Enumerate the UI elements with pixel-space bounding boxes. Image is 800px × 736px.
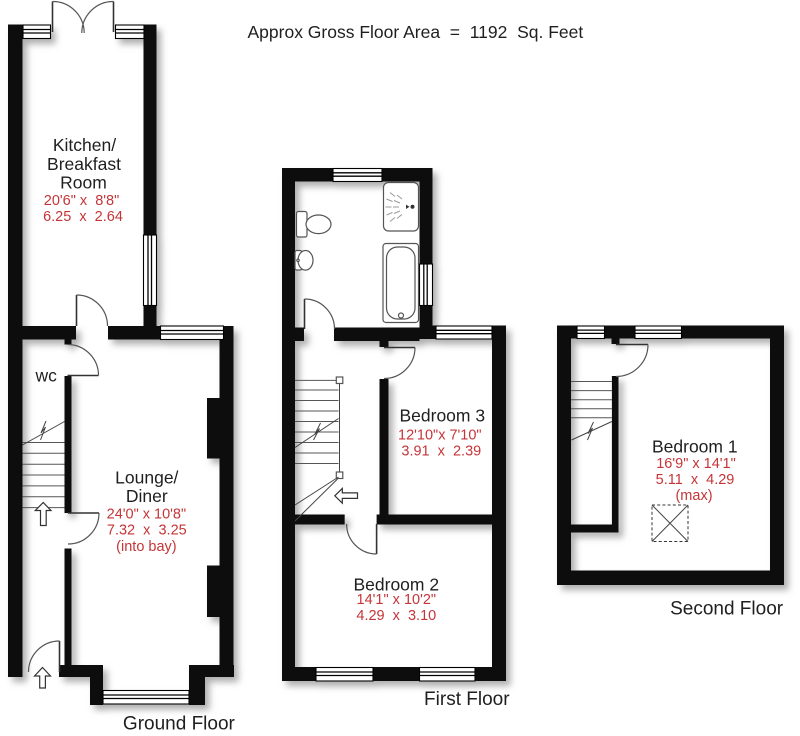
svg-text:Breakfast: Breakfast — [47, 154, 121, 174]
svg-text:20'6" x 8'8": 20'6" x 8'8" — [44, 193, 120, 209]
svg-text:(into bay): (into bay) — [116, 539, 176, 555]
svg-text:Second Floor: Second Floor — [670, 599, 784, 620]
svg-text:(max): (max) — [675, 488, 712, 504]
svg-text:6.25 x 2.64: 6.25 x 2.64 — [43, 209, 123, 225]
svg-text:Room: Room — [60, 173, 107, 193]
svg-text:Approx Gross Floor Area = 11: Approx Gross Floor Area = 1192 Sq. Feet — [248, 22, 584, 42]
svg-text:Bedroom 3: Bedroom 3 — [399, 405, 485, 425]
svg-text:14'1" x 10'2": 14'1" x 10'2" — [357, 592, 437, 608]
svg-text:24'0" x 10'8": 24'0" x 10'8" — [107, 507, 187, 523]
svg-text:Bedroom 1: Bedroom 1 — [652, 436, 738, 456]
svg-text:Lounge/: Lounge/ — [115, 467, 178, 487]
svg-text:wc: wc — [35, 365, 58, 385]
svg-text:7.32 x 3.25: 7.32 x 3.25 — [107, 523, 187, 539]
svg-text:First Floor: First Floor — [424, 689, 510, 710]
svg-text:16'9" x 14'1": 16'9" x 14'1" — [656, 456, 736, 472]
svg-text:5.11 x 4.29: 5.11 x 4.29 — [656, 472, 735, 488]
svg-text:Diner: Diner — [126, 486, 168, 506]
svg-text:Ground Floor: Ground Floor — [123, 714, 236, 735]
svg-text:12'10"x 7'10": 12'10"x 7'10" — [398, 427, 482, 443]
svg-text:4.29 x 3.10: 4.29 x 3.10 — [356, 608, 436, 624]
svg-text:Kitchen/: Kitchen/ — [53, 135, 116, 155]
svg-text:3.91 x 2.39: 3.91 x 2.39 — [401, 444, 481, 460]
